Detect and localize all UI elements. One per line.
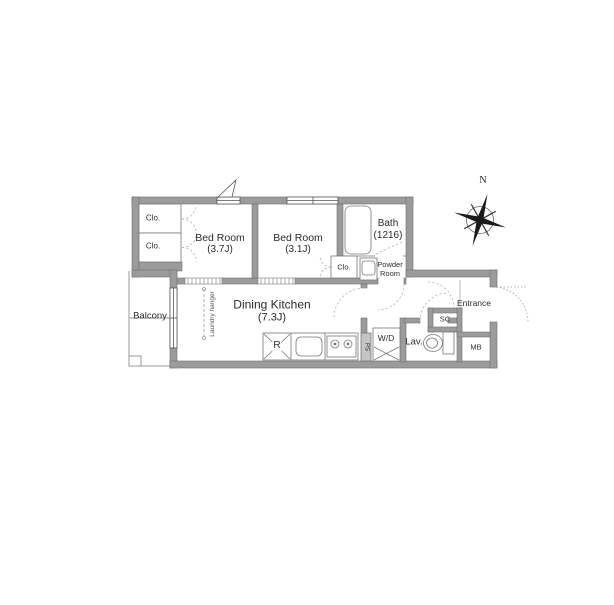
bedroom-2-size: (3.1J)	[273, 244, 323, 256]
bedroom-1-name: Bed Room	[195, 232, 245, 244]
bath-name: Bath	[374, 218, 403, 230]
label-dining-kitchen: Dining Kitchen (7.3J)	[233, 297, 310, 324]
stove-icon	[327, 336, 356, 357]
label-meter-box: MB	[470, 344, 481, 353]
label-lavatory: Lav.	[405, 336, 422, 347]
entrance-door-arc	[493, 287, 528, 322]
label-bedroom-2: Bed Room (3.1J)	[273, 232, 323, 256]
bath-size: (1216)	[374, 230, 403, 242]
casement-window-icon	[218, 180, 236, 197]
label-shoe-closet: SC	[440, 316, 450, 325]
sink-icon	[296, 337, 322, 356]
label-closet-2: Clo.	[146, 241, 160, 250]
dining-kitchen-size: (7.3J)	[233, 312, 310, 325]
bedroom-2-name: Bed Room	[273, 232, 323, 244]
label-pipe-shaft: PS	[362, 343, 369, 351]
toilet-icon	[424, 332, 455, 354]
label-closet-1: Clo.	[146, 213, 160, 222]
label-powder-room: Powder Room	[377, 261, 402, 279]
label-entrance: Entrance	[457, 298, 491, 308]
label-bedroom-1: Bed Room (3.7J)	[195, 232, 245, 256]
label-balcony: Balcony	[133, 310, 167, 321]
label-closet-3: Clo.	[337, 264, 350, 273]
label-refrigerator: R	[272, 340, 281, 352]
bathtub-icon	[345, 206, 371, 254]
label-bath: Bath (1216)	[374, 218, 403, 242]
dining-kitchen-name: Dining Kitchen	[233, 297, 310, 311]
label-washer-dryer: W/D	[377, 333, 396, 343]
bedroom-1-size: (3.7J)	[195, 244, 245, 256]
floor-plan: Clo. Clo. Bed Room (3.7J) Bed Room (3.1J…	[0, 0, 614, 605]
powder-room-line2: Room	[377, 270, 402, 279]
compass-rose-icon	[447, 187, 514, 254]
laundry-hanger-icon	[203, 288, 206, 340]
label-laundry-hanger: Laundry hanger	[209, 291, 217, 337]
label-compass-north: N	[479, 175, 486, 187]
